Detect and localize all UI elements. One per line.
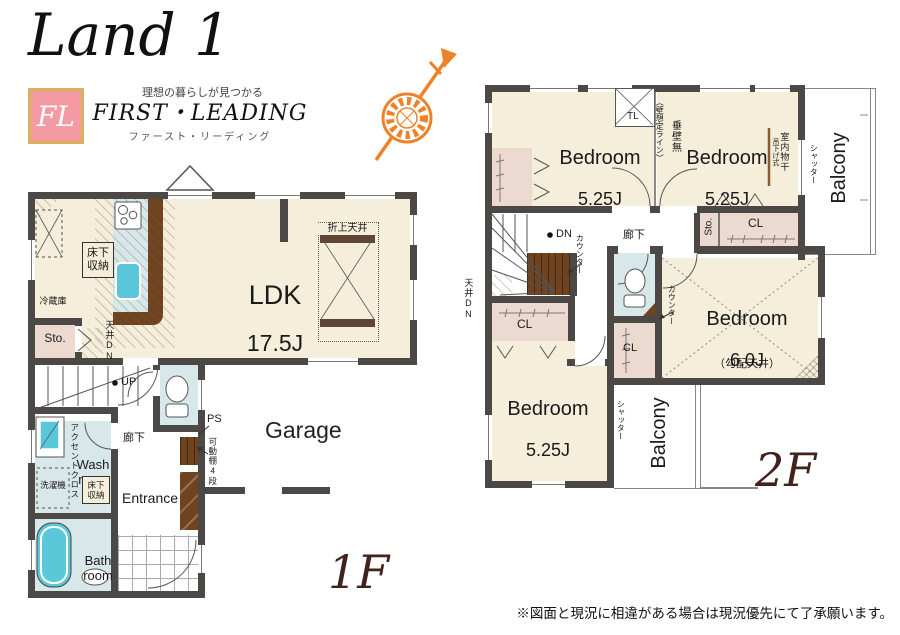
skylight-label: TL (627, 111, 639, 123)
brand-company-kana: ファースト・リーディング (86, 132, 314, 144)
entrance-label: Entrance (122, 490, 178, 506)
floor-storage-label: 床下収納 (82, 242, 114, 278)
ceiling-dn2-label: 天井DN (463, 278, 473, 328)
bedroom1-label: Bedroom 5.25J (540, 129, 660, 228)
floor2-label: 2F (755, 443, 816, 497)
plan-2f: Bedroom 5.25J Bedroom 5.25J Bedroom 5.25… (455, 78, 895, 508)
shutter-label: シャッター (809, 144, 818, 194)
brand-tagline: 理想の暮らしが見つかる (95, 87, 310, 100)
door-mark-icon (165, 164, 215, 192)
compass-icon (362, 38, 462, 168)
bedroom3-closet-label: CL (517, 318, 532, 332)
bathroom-label: Bath room (76, 539, 120, 584)
floor1-label: 1F (328, 545, 389, 599)
ceiling-dn-label: 天井DN (104, 320, 114, 370)
brand-logo: Land 1 (28, 2, 318, 69)
hallway2-label: 廊下 (623, 229, 645, 242)
shelf-label: 可動棚4段 (207, 437, 217, 497)
sto-label: Sto. (35, 332, 75, 346)
balcony-bottom-label: Balcony (648, 378, 668, 488)
bedroom4-label: Bedroom 6.0J (687, 290, 807, 389)
counter-label: カウンター (667, 285, 676, 335)
raised-ceiling-label: 折上天井 (318, 223, 377, 235)
closet-topright-label: CL (748, 217, 763, 231)
ldk-label: LDK 17.5J (200, 262, 350, 375)
brand-badge-text: FL (37, 100, 75, 133)
wall-line-label: （壁想定ライン） (655, 98, 664, 203)
disclaimer: ※図面と現況に相違がある場合は現況優先にて了承願います。 (455, 606, 893, 622)
indoor-drying-label: 室内物干 (779, 132, 789, 184)
storage2-label: Sto. (703, 207, 715, 247)
bedroom2-label: Bedroom 5.25J (667, 129, 787, 228)
shutter-label: シャッター (616, 400, 625, 450)
dn-label: DN (556, 228, 572, 241)
hallway-label: 廊下 (123, 432, 145, 445)
hanging-type-label: 吊下げ式 (771, 138, 779, 178)
bedroom3-label: Bedroom 5.25J (488, 380, 608, 479)
brand-badge: FL (28, 88, 84, 144)
sloped-ceiling-label: （勾配天井） (692, 358, 802, 371)
floorplan-flyer: Land 1 FL 理想の暮らしが見つかる FIRST・LEADING ファース… (0, 0, 900, 635)
fridge-label: 冷蔵庫 (37, 296, 69, 306)
ps-label: PS (207, 413, 222, 426)
plan-1f: LDK 17.5J 折上天井 床下収納 冷蔵庫 Sto. 天井DN UP 廊下 … (28, 190, 420, 605)
no-hanging-wall-label: 垂壁無 (669, 120, 681, 164)
closet-small-label: CL (623, 342, 637, 355)
counter-label: カウンター (575, 234, 584, 284)
balcony-right-label: Balcony (828, 113, 848, 223)
garage-label: Garage (265, 417, 342, 443)
up-label: UP (121, 376, 136, 389)
floor-storage-label: 床下収納 (82, 476, 110, 504)
brand-company-en: FIRST・LEADING (86, 101, 314, 126)
washer-label: 洗濯機 (38, 481, 68, 491)
